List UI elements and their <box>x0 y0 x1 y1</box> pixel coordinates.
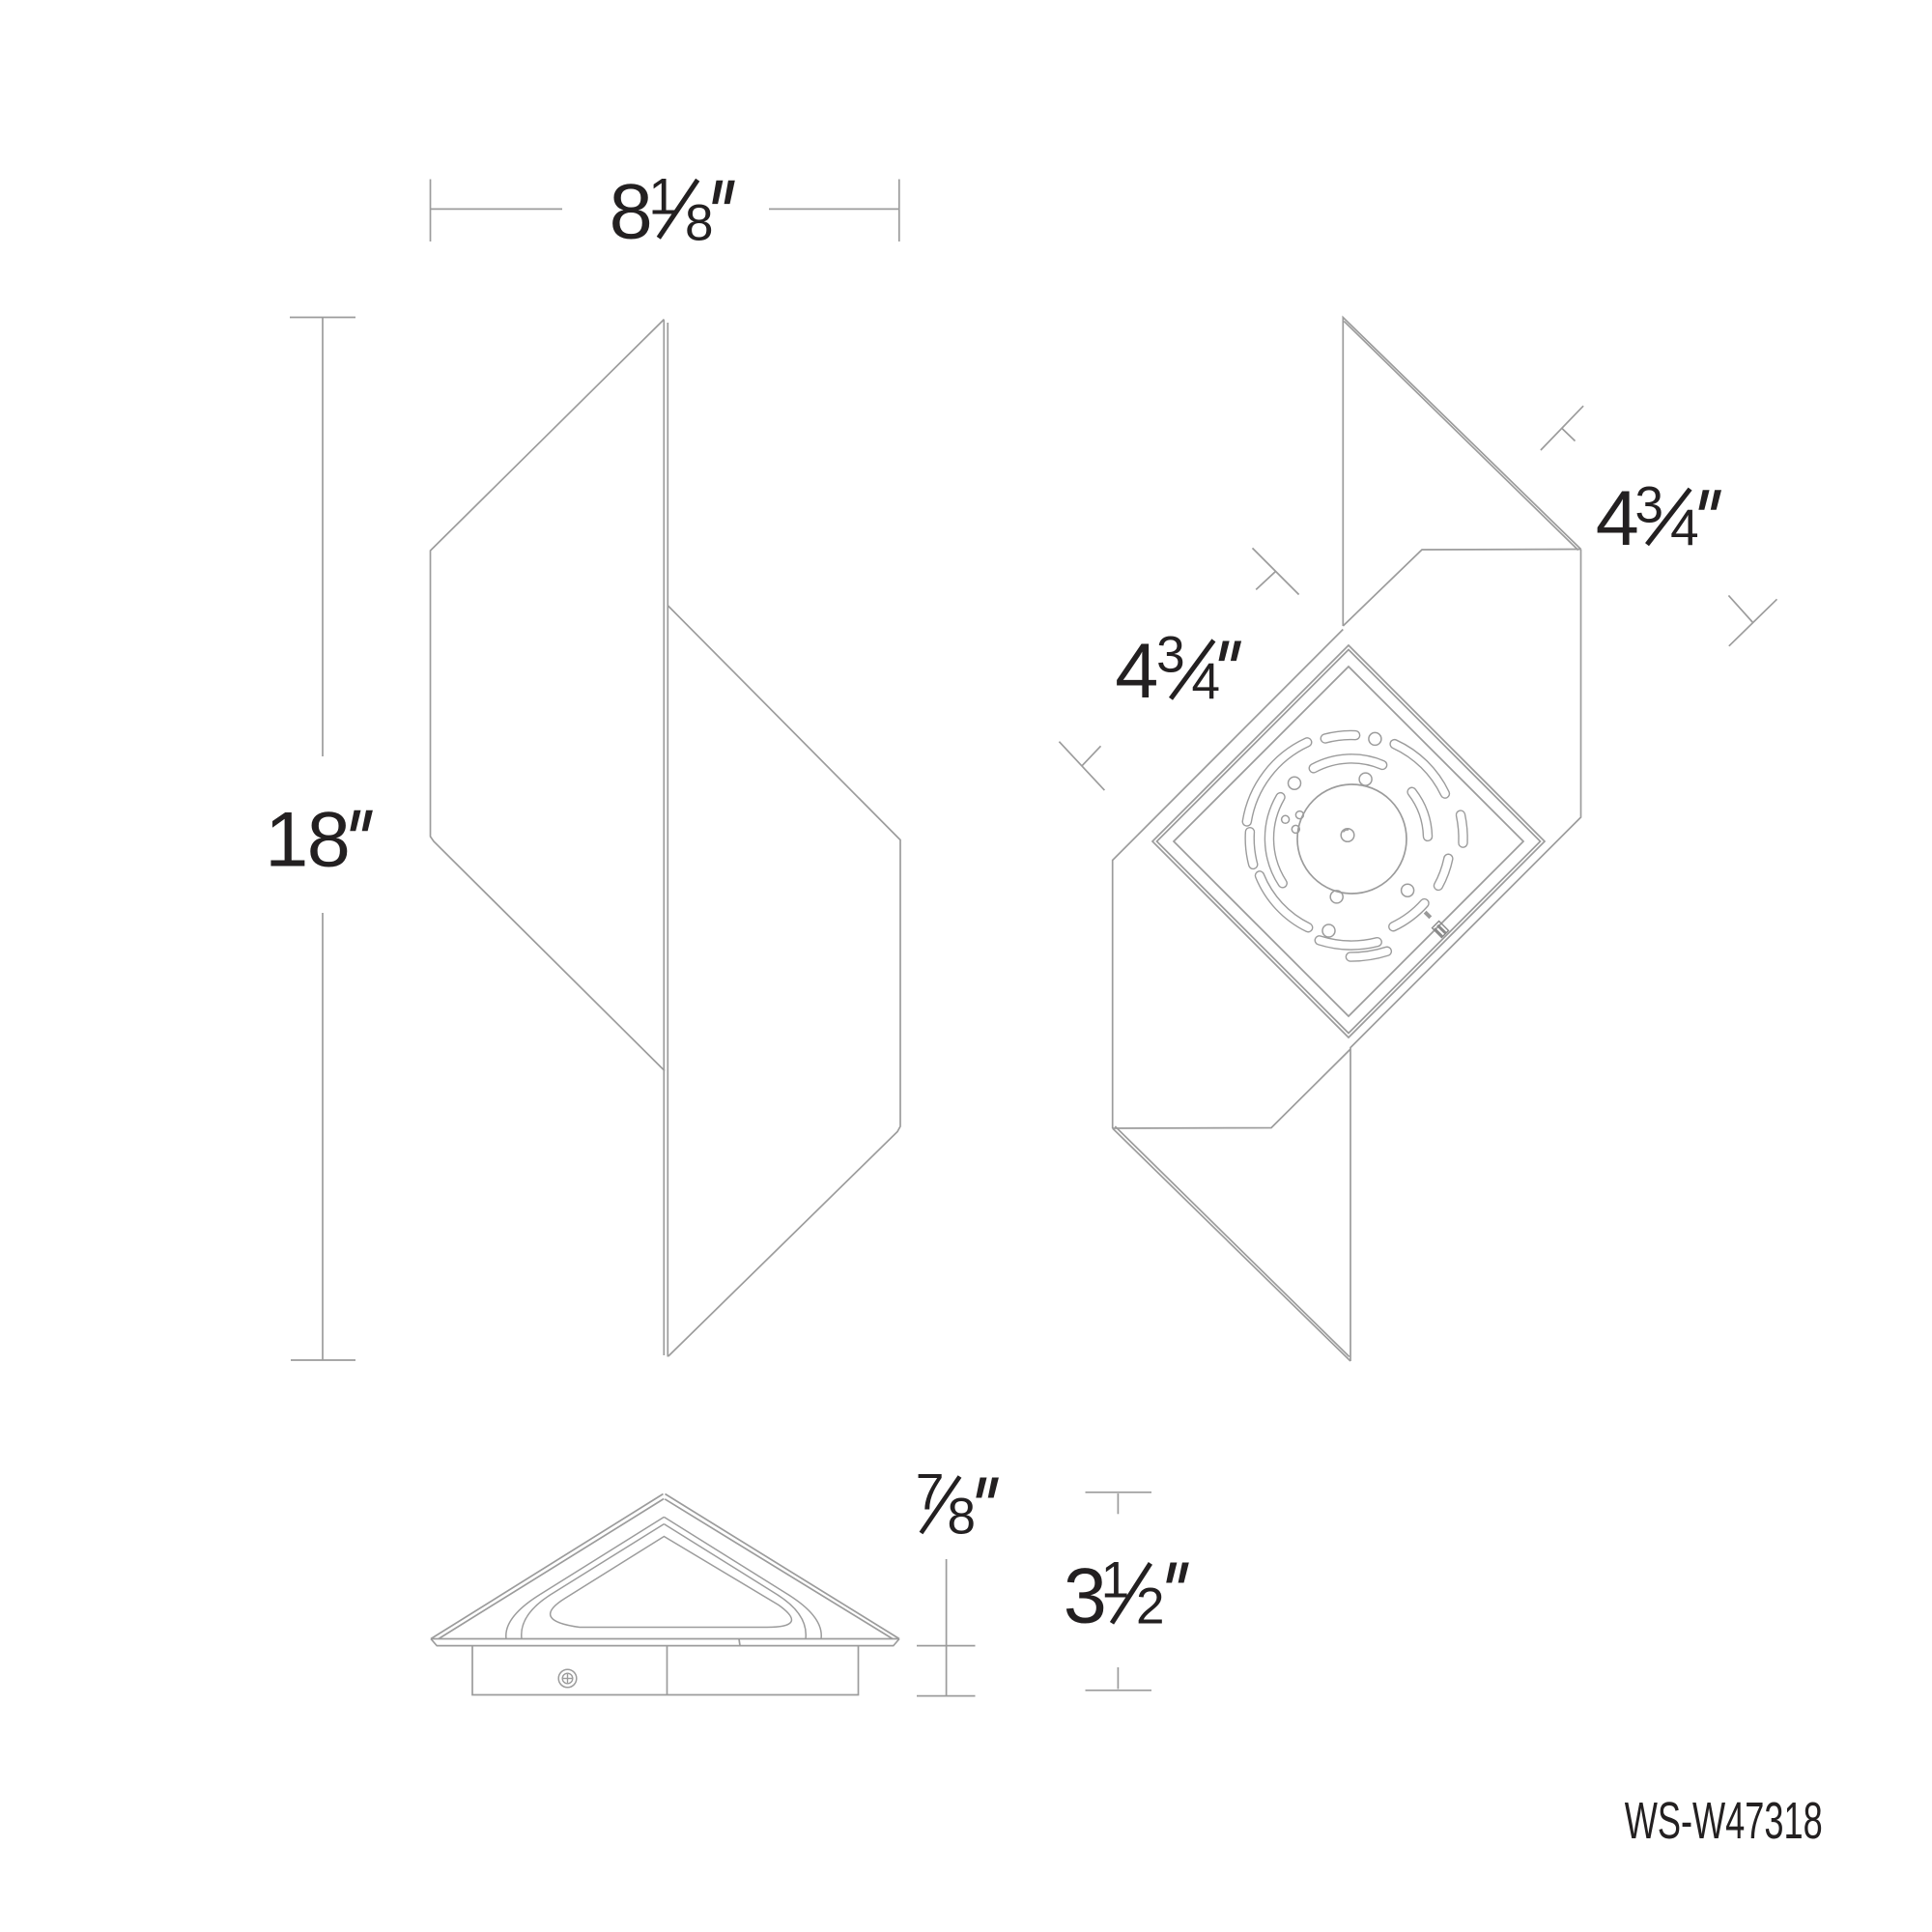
svg-text:7: 7 <box>916 1464 944 1521</box>
svg-text:1: 1 <box>265 797 308 884</box>
svg-text:8: 8 <box>948 1489 976 1546</box>
svg-text:4: 4 <box>1596 475 1639 562</box>
svg-text:4: 4 <box>1115 628 1158 715</box>
svg-text:4: 4 <box>1192 654 1220 711</box>
svg-text:8: 8 <box>610 169 653 256</box>
svg-text:8: 8 <box>685 195 713 252</box>
svg-text:8: 8 <box>307 797 351 884</box>
svg-text:2: 2 <box>1136 1578 1164 1635</box>
svg-text:3: 3 <box>1156 626 1184 683</box>
svg-text:4: 4 <box>1670 500 1698 557</box>
svg-text:WS-W47318: WS-W47318 <box>1625 1792 1823 1850</box>
